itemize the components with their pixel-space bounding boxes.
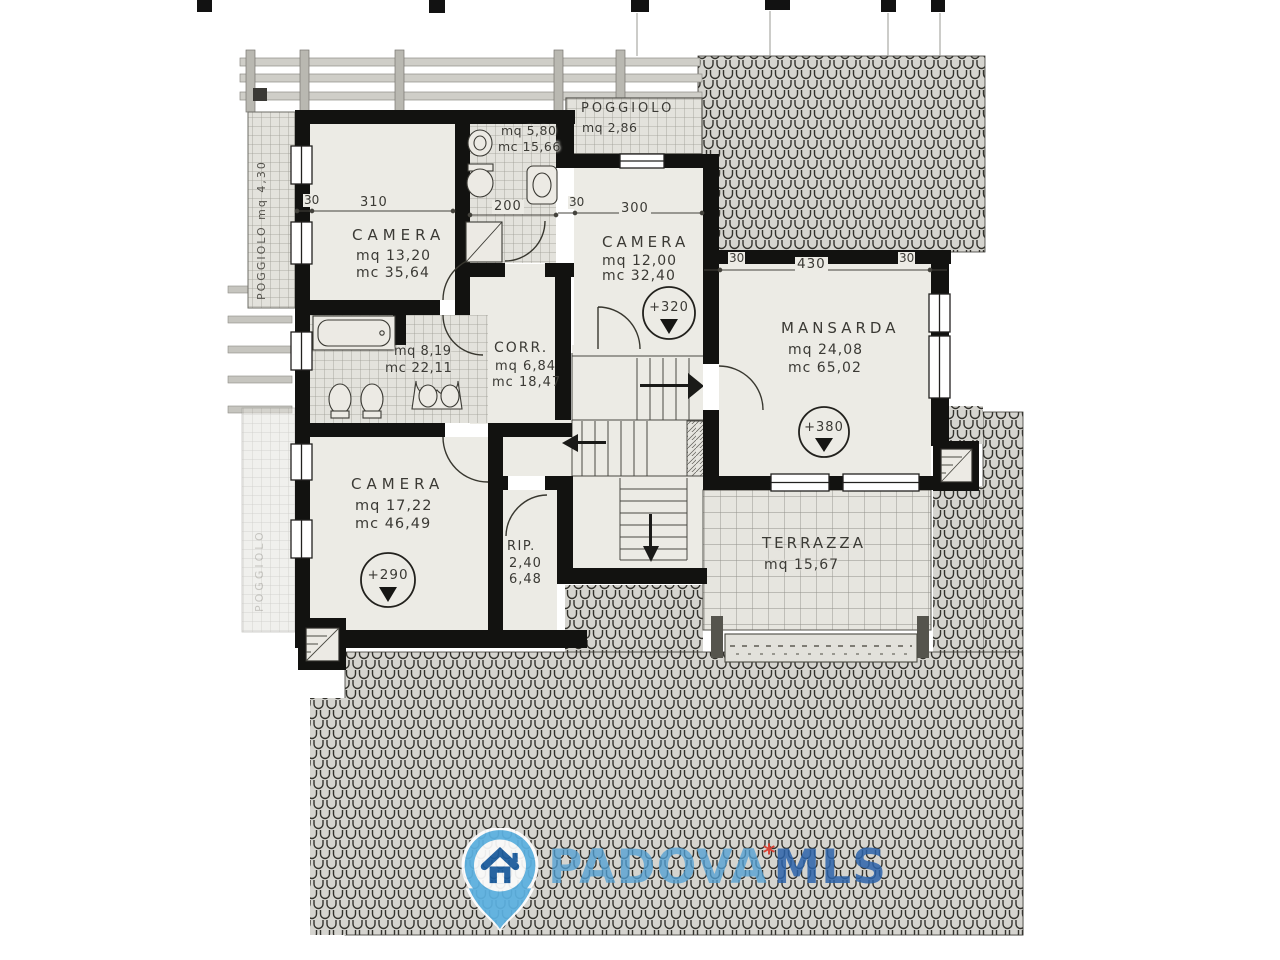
watermark-mls: MLS	[773, 840, 887, 895]
dim-30-nw: 30	[303, 194, 320, 207]
floor-plan-drawing	[0, 0, 1280, 960]
corridor-name: CORR.	[494, 341, 548, 356]
poggiolo-left-lower-strip	[242, 408, 295, 632]
wall-rip-top-a	[488, 476, 508, 490]
chimney-right	[933, 441, 979, 491]
wall-stair-bottom	[557, 568, 707, 584]
watermark-star-icon: *	[763, 839, 777, 867]
wall-left-outer	[295, 110, 310, 648]
level-camera-n-value: +320	[647, 301, 691, 315]
camera-n-volume: mc 32,40	[602, 269, 676, 284]
camera-sw-name: CAMERA	[351, 477, 444, 493]
bath-mid-area: mq 8,19	[394, 345, 452, 359]
floor-plan-scan: POGGIOLO mq 2,86 CAMERA mq 13,20 mc 35,6…	[0, 0, 1280, 960]
wall-camera-sw-top-b	[488, 423, 572, 437]
window-mansarda-right-1	[929, 294, 950, 332]
camera-n-area: mq 12,00	[602, 254, 677, 269]
padovamls-pin-logo	[458, 828, 542, 932]
poggiolo-top-name: POGGIOLO	[581, 102, 674, 116]
pin-tail	[469, 888, 531, 929]
terrazza-area: mq 15,67	[764, 558, 839, 573]
wall-camera-sw-right	[488, 437, 503, 648]
camera-nw-volume: mc 35,64	[356, 266, 430, 281]
roof-top-right	[698, 56, 985, 252]
dim-30-mansarda-right: 30	[898, 252, 915, 265]
bidet-mid	[361, 384, 383, 418]
scan-artifacts	[197, 0, 945, 56]
terrazza-name: TERRAZZA	[762, 536, 866, 552]
toilet-mid	[329, 384, 351, 418]
camera-nw-area: mq 13,20	[356, 249, 431, 264]
mansarda-volume: mc 65,02	[788, 361, 862, 376]
corridor-area: mq 6,84	[495, 360, 556, 374]
bath-top-area: mq 5,80	[501, 124, 556, 137]
camera-sw-volume: mc 46,49	[355, 517, 431, 532]
rip-area: 2,40	[509, 557, 542, 571]
dim-430: 430	[795, 257, 828, 271]
window-mansarda-bottom-2	[843, 474, 919, 491]
dim-30-n: 30	[568, 196, 585, 209]
sink-top	[527, 166, 557, 204]
poggiolo-top-area: mq 2,86	[582, 121, 637, 134]
wall-mansarda-left	[703, 154, 719, 490]
wall-camera-sw-top-a	[295, 423, 445, 437]
dim-200: 200	[492, 200, 524, 214]
chimney-left	[298, 618, 346, 670]
bathtub	[313, 316, 395, 350]
roof-right-of-terrace	[933, 486, 983, 664]
bath-mid-volume: mc 22,11	[385, 361, 453, 375]
watermark-text: PADOVA*MLS	[548, 840, 887, 895]
left-balcony-strips	[242, 112, 295, 632]
camera-nw-name: CAMERA	[352, 228, 445, 244]
wall-top	[295, 110, 575, 124]
bath-top-volume: mc 15,66	[498, 140, 561, 153]
rip-name: RIP.	[507, 540, 536, 554]
level-camera-sw-value: +290	[366, 568, 410, 582]
poggiolo-left-lower-label: POGGIOLO	[254, 529, 266, 612]
camera-sw-area: mq 17,22	[355, 499, 432, 514]
corridor-volume: mc 18,47	[492, 376, 561, 390]
wall-bath-top-bottom-a	[455, 263, 505, 277]
window-left-2	[291, 222, 312, 264]
dim-310: 310	[358, 196, 390, 210]
wall-rip-right	[557, 476, 573, 584]
poggiolo-left-label: POGGIOLO mq 4,30	[256, 160, 268, 300]
rip-volume: 6,48	[509, 573, 542, 587]
window-left-1	[291, 146, 312, 184]
bidet-top	[468, 130, 492, 156]
mansarda-door-opening	[703, 364, 719, 410]
watermark-padova: PADOVA	[548, 840, 768, 895]
window-left-4	[291, 444, 312, 480]
roof-bottom-left	[310, 698, 346, 935]
wall-camera-nw-bottom	[295, 300, 440, 315]
window-poggiolo-top	[620, 154, 664, 168]
padovamls-watermark: PADOVA*MLS	[452, 822, 872, 940]
wall-corridor-right	[555, 264, 571, 420]
mansarda-name: MANSARDA	[781, 321, 899, 337]
window-mansarda-bottom-1	[771, 474, 829, 491]
camera-n-name: CAMERA	[602, 235, 689, 251]
dim-30-mansarda-left: 30	[728, 252, 745, 265]
toilet-top	[467, 164, 493, 197]
dim-300: 300	[619, 202, 651, 216]
shower-tray	[466, 222, 502, 262]
level-mansarda-value: +380	[802, 421, 846, 435]
mansarda-area: mq 24,08	[788, 343, 863, 358]
window-left-5	[291, 520, 312, 558]
window-mansarda-right-2	[929, 336, 950, 398]
window-left-3	[291, 332, 312, 370]
